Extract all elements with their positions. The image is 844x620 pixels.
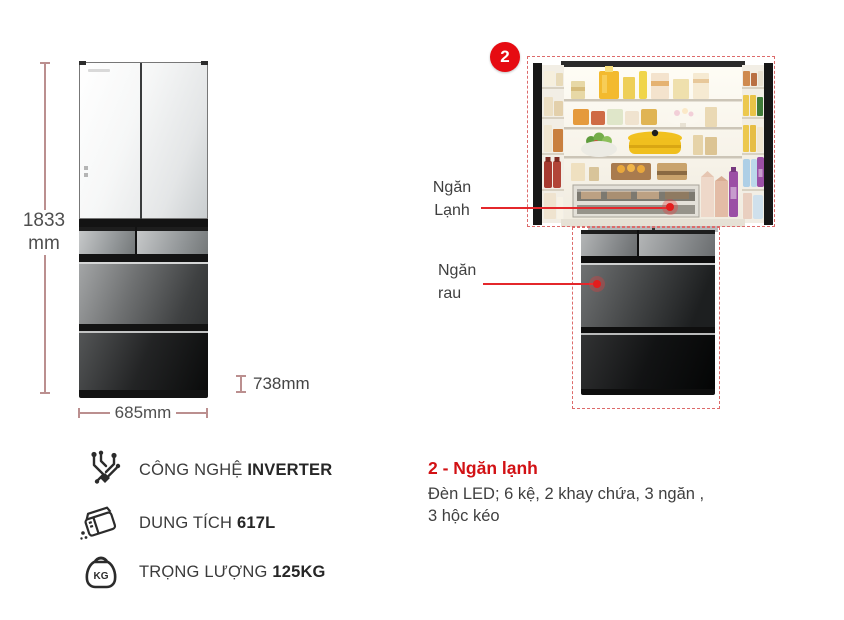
callout-title: 2 - Ngăn lạnh <box>428 458 768 479</box>
hinge-left <box>79 61 86 65</box>
depth-dim-line <box>240 376 242 392</box>
small-drawer-left <box>79 227 135 254</box>
separator-band3 <box>79 324 208 331</box>
cold-label-line2: Lạnh <box>434 202 470 219</box>
cold-label-line1: Ngăn <box>433 179 471 196</box>
door-control-detail <box>84 166 88 170</box>
veg-connector-line <box>483 283 595 285</box>
door-control-detail2 <box>84 173 88 177</box>
fridge-base <box>79 390 208 398</box>
product-infographic: 1833 mm 685mm <box>0 0 844 620</box>
badge-number: 2 <box>500 47 509 67</box>
veg-hotspot-dot <box>589 276 605 292</box>
spec-inverter: CÔNG NGHỆ INVERTER <box>139 461 332 480</box>
hinge-right <box>201 61 208 65</box>
spec-weight-label: TRỌNG LƯỢNG <box>139 563 272 581</box>
closed-fridge-figure <box>79 62 208 398</box>
spec-weight: TRỌNG LƯỢNG 125KG <box>139 563 326 582</box>
bottom-drawer <box>79 331 208 390</box>
spec-capacity-value: 617L <box>237 514 275 532</box>
fridge-capacity-icon <box>77 503 121 543</box>
depth-dim-label: 738mm <box>253 374 310 394</box>
cold-compartment-label: Ngăn Lạnh <box>424 177 480 222</box>
cold-hotspot-dot <box>662 199 678 215</box>
depth-bottom-tick <box>236 391 246 393</box>
vegetable-compartment-label: Ngăn rau <box>438 260 498 305</box>
feature-callout: 2 - Ngăn lạnh Đèn LED; 6 kệ, 2 khay chứa… <box>428 458 768 528</box>
callout-line1: Đèn LED; 6 kệ, 2 khay chứa, 3 ngăn , <box>428 484 768 506</box>
hotspot-badge-2: 2 <box>490 42 520 72</box>
height-dim-label: 1833 mm <box>17 210 71 256</box>
vegetable-compartment-box <box>572 227 720 409</box>
brand-mark <box>88 69 110 72</box>
height-dim-bottom-tick <box>40 392 50 394</box>
veg-label-line2: rau <box>438 285 461 302</box>
width-value: 685mm <box>110 403 177 422</box>
cold-compartment-box <box>527 56 775 227</box>
spec-inverter-value: INVERTER <box>247 461 332 479</box>
depth-value: 738mm <box>253 374 310 393</box>
callout-line2: 3 hộc kéo <box>428 506 768 528</box>
height-dim-line-upper <box>44 63 46 210</box>
height-unit: mm <box>28 233 60 254</box>
veg-label-line1: Ngăn <box>438 262 476 279</box>
separator-band <box>79 219 208 227</box>
weight-kettlebell-icon: KG <box>84 549 118 593</box>
height-dim-line-lower <box>44 255 46 393</box>
kg-icon-label: KG <box>94 571 109 582</box>
spec-weight-value: 125KG <box>272 563 325 581</box>
width-dim-label: 685mm <box>78 403 208 423</box>
spec-capacity-label: DUNG TÍCH <box>139 514 237 532</box>
spec-capacity: DUNG TÍCH 617L <box>139 514 275 533</box>
middle-drawer <box>79 262 208 324</box>
small-drawer-divider <box>135 227 137 254</box>
inverter-circuit-icon <box>86 450 122 488</box>
door-divider <box>140 63 142 220</box>
height-value: 1833 <box>23 210 65 231</box>
separator-band2 <box>79 254 208 262</box>
small-drawers-row <box>79 227 208 254</box>
spec-inverter-label: CÔNG NGHỆ <box>139 461 247 479</box>
fridge-top-doors <box>79 62 208 219</box>
cold-connector-line <box>481 207 670 209</box>
small-drawer-right <box>137 227 208 254</box>
